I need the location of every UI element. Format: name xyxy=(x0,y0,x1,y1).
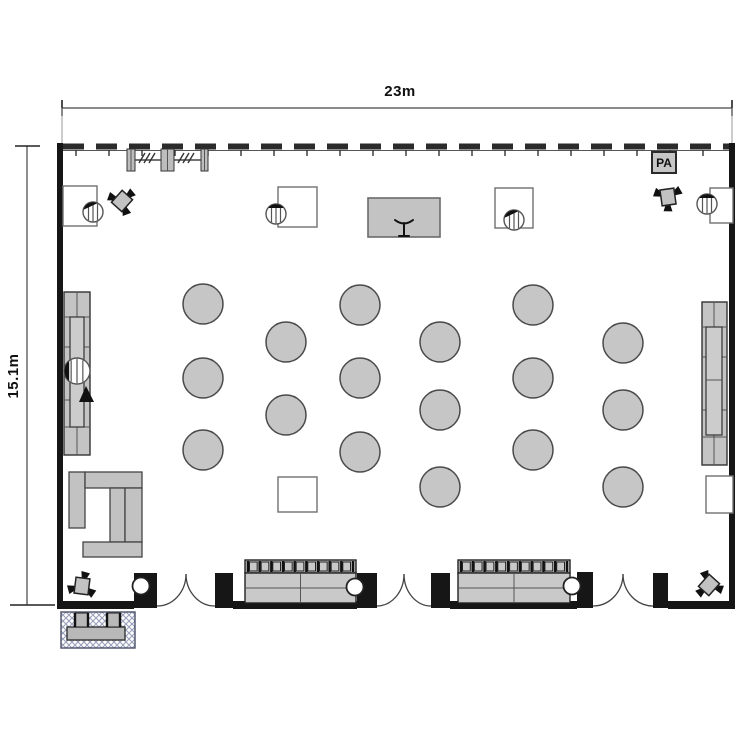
wall-segment xyxy=(57,601,134,609)
sofa-back-cushion xyxy=(510,562,518,571)
sofa-back-cushion xyxy=(261,562,269,571)
round-table xyxy=(420,467,460,507)
sofa-back-cushion xyxy=(521,562,529,571)
wall-mounted-circle xyxy=(564,578,581,595)
pa-system-box: PA xyxy=(651,151,677,174)
lounge-sofa xyxy=(85,472,142,488)
foh-stool xyxy=(107,613,120,627)
round-table xyxy=(340,432,380,472)
sofa-back-cushion xyxy=(296,562,304,571)
wall-mounted-circle xyxy=(133,578,150,595)
lounge-sofa xyxy=(83,542,142,557)
bench-sofa xyxy=(245,560,356,603)
sofa-back-cushion xyxy=(250,562,258,571)
round-table xyxy=(513,430,553,470)
round-table xyxy=(340,285,380,325)
lounge-sofa xyxy=(69,472,85,528)
floor-plan: 23m 15.1m PA xyxy=(0,0,750,750)
wall-pier xyxy=(431,573,450,608)
chair-icon xyxy=(266,204,286,224)
sofa-back-cushion xyxy=(486,562,494,571)
sofa-back-cushion xyxy=(474,562,482,571)
wall-pier xyxy=(215,573,233,608)
sofa-back-cushion xyxy=(285,562,293,571)
bar-counter-right-inner xyxy=(706,327,722,435)
sofa-back-cushion xyxy=(320,562,328,571)
square-table xyxy=(706,476,733,513)
wall-segment xyxy=(668,601,735,609)
round-table xyxy=(420,322,460,362)
sofa-back-cushion xyxy=(533,562,541,571)
sofa-back-cushion xyxy=(498,562,506,571)
round-table xyxy=(420,390,460,430)
bench-sofa xyxy=(458,560,570,603)
chair-icon xyxy=(504,210,524,230)
lounge-sofa xyxy=(110,488,125,542)
dimension-height-label: 15.1m xyxy=(5,346,23,406)
sofa-back-cushion xyxy=(331,562,339,571)
round-table xyxy=(603,390,643,430)
foh-desk xyxy=(67,627,125,640)
round-table xyxy=(513,358,553,398)
sofa-back-cushion xyxy=(557,562,565,571)
sofa-back-cushion xyxy=(545,562,553,571)
sofa-back-cushion xyxy=(308,562,316,571)
round-table xyxy=(183,284,223,324)
round-table xyxy=(183,358,223,398)
chair-icon xyxy=(83,202,103,222)
round-table xyxy=(340,358,380,398)
round-table xyxy=(603,467,643,507)
chair-icon xyxy=(697,194,717,214)
round-table xyxy=(603,323,643,363)
sofa-back-cushion xyxy=(343,562,351,571)
square-table xyxy=(278,477,317,512)
wall-pier xyxy=(653,573,668,608)
speaker-body xyxy=(660,188,676,206)
wall-mounted-circle xyxy=(347,579,364,596)
dimension-width-label: 23m xyxy=(340,83,460,100)
round-table xyxy=(266,322,306,362)
stage-table xyxy=(368,198,440,237)
foh-stool xyxy=(75,613,88,627)
speaker-body xyxy=(74,577,90,595)
sofa-back-cushion xyxy=(273,562,281,571)
foh-control-area xyxy=(61,612,135,648)
round-table xyxy=(266,395,306,435)
round-table xyxy=(183,430,223,470)
round-table xyxy=(513,285,553,325)
lounge-sofa xyxy=(125,488,142,542)
bar-counter-right xyxy=(702,302,727,465)
sofa-back-cushion xyxy=(463,562,471,571)
chair-icon xyxy=(64,358,90,384)
wall-segment xyxy=(57,143,63,609)
floor-plan-drawing xyxy=(0,0,750,750)
